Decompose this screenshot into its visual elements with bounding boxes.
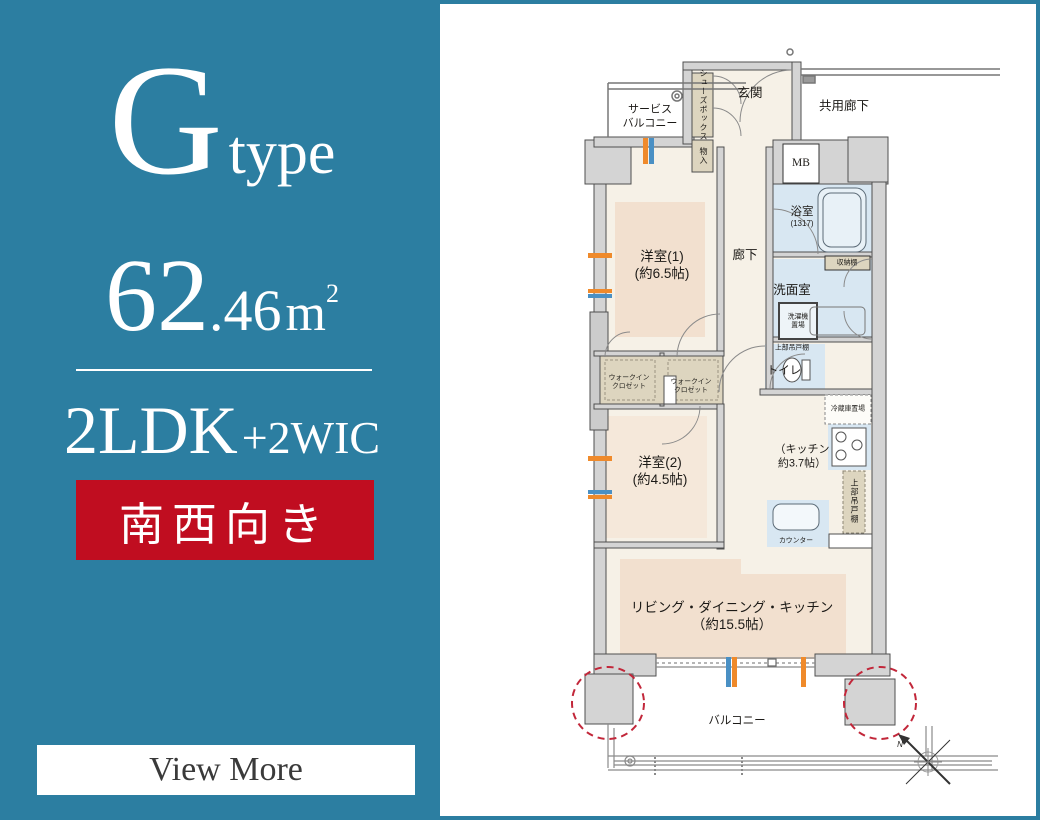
label-wic-1: ウォークイン クロゼット — [609, 374, 650, 391]
label-yoshitsu2: 洋室(2) (約4.5帖) — [633, 455, 688, 489]
layout-main: 2LDK — [64, 396, 238, 464]
label-jobu-tsuridana-toilet: 上部吊戸棚 — [775, 344, 809, 353]
divider-line — [76, 369, 372, 371]
label-yokushitsu: 浴室 (1317) — [790, 205, 813, 229]
layout-plus: +2WIC — [242, 415, 380, 461]
type-letter: G — [109, 42, 223, 200]
label-mono-ire: 物入 — [698, 147, 708, 165]
label-reizoko: 冷蔵庫置場 — [831, 405, 865, 414]
floor-plan: サービス バルコニー 玄関 共用廊下 MB シューズボックス 物入 洋室(1) … — [440, 4, 1040, 816]
label-toire: トイレ — [767, 364, 802, 378]
plan-card: G type 62 .46 m2 2LDK +2WIC 南西向き View Mo… — [0, 0, 1040, 820]
label-yoshitsu1: 洋室(1) (約6.5帖) — [635, 249, 690, 283]
label-north: N — [897, 740, 903, 750]
room-layout: 2LDK +2WIC — [4, 396, 440, 464]
label-kitchen: （キッチン 約3.7帖） — [775, 443, 830, 471]
label-wic-2: ウォークイン クロゼット — [671, 378, 712, 395]
type-title: G type — [4, 42, 440, 200]
label-genkan: 玄関 — [737, 86, 762, 102]
view-more-button[interactable]: View More — [37, 745, 415, 795]
area-unit-sup: 2 — [326, 279, 339, 308]
label-service-balcony: サービス バルコニー — [623, 103, 678, 131]
area-decimal: .46 — [209, 282, 282, 340]
label-jobu-tsuridana-kitchen: 上部吊戸棚 — [849, 479, 859, 524]
label-shunodana: 収納棚 — [837, 259, 857, 268]
label-counter: カウンター — [779, 537, 813, 546]
floor-area: 62 .46 m2 — [4, 244, 440, 348]
compass-icon — [898, 734, 950, 784]
direction-badge: 南西向き — [76, 480, 374, 560]
area-unit-m: m — [286, 285, 326, 342]
label-kyoyo-roka: 共用廊下 — [819, 99, 869, 115]
area-integer: 62 — [105, 244, 209, 348]
label-mb: MB — [792, 156, 810, 170]
label-sentakuki: 洗濯機 置場 — [788, 313, 808, 330]
floor-plan-drawing — [440, 4, 1040, 816]
label-balcony: バルコニー — [708, 714, 765, 728]
label-roka: 廊下 — [732, 248, 757, 264]
label-shoes-box: シューズボックス — [698, 69, 708, 141]
label-senmenshitsu: 洗面室 — [773, 283, 811, 299]
info-panel: G type 62 .46 m2 2LDK +2WIC 南西向き View Mo… — [4, 4, 440, 816]
label-ldk: リビング・ダイニング・キッチン （約15.5帖） — [631, 600, 834, 634]
type-suffix: type — [229, 122, 336, 184]
area-unit: m2 — [286, 281, 339, 340]
